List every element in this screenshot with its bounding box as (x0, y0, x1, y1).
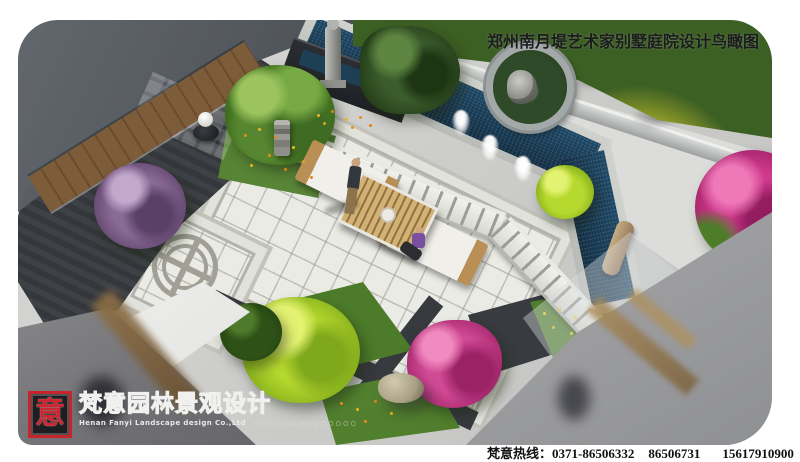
hotline-phone-1: 0371-86506332 (552, 446, 634, 461)
flower-dots (240, 124, 243, 127)
board-title: 郑州南月堤艺术家别墅庭院设计鸟瞰图 (487, 31, 759, 53)
person-legs (344, 187, 358, 214)
logo-dot-row: ○○○○○○○○○○○○○○ (254, 420, 358, 427)
lime-bush-small (536, 165, 594, 219)
stone-lantern (274, 120, 290, 156)
fountain-jet (514, 156, 532, 182)
moon-gate-window (486, 43, 574, 131)
hotline: 梵意热线：0371-865063328650673115617910900（孙） (487, 443, 800, 462)
table-plate (380, 207, 396, 223)
design-presentation-board: 郑州南月堤艺术家别墅庭院设计鸟瞰图 意 梵意园林景观设计 Henan Fanyi… (0, 0, 800, 462)
logo-subline: Henan Fanyi Landscape design Co.,Ltd ○○○… (79, 419, 358, 427)
stone-statue (325, 26, 341, 82)
lilac-tree (94, 163, 186, 249)
pine-tree (360, 26, 460, 114)
fountain-jet (481, 135, 499, 161)
blurred-figure (558, 376, 590, 420)
garden-rock (378, 373, 424, 403)
courtyard-birdseye-rendering (18, 20, 772, 445)
logo-text-block: 梵意园林景观设计 Henan Fanyi Landscape design Co… (79, 391, 358, 427)
seal-icon: 意 (28, 391, 72, 438)
company-logo: 意 梵意园林景观设计 Henan Fanyi Landscape design … (28, 391, 358, 438)
hotline-phone-2: 86506731 (648, 446, 700, 461)
company-name-en: Henan Fanyi Landscape design Co.,Ltd (79, 419, 246, 427)
white-lantern (198, 112, 213, 127)
taihu-rock (507, 70, 537, 104)
seated-person (400, 225, 434, 271)
company-name-cn: 梵意园林景观设计 (79, 391, 358, 417)
hotline-label: 梵意热线： (487, 446, 552, 461)
fountain-jet (452, 110, 470, 136)
flower-dots (303, 108, 306, 111)
